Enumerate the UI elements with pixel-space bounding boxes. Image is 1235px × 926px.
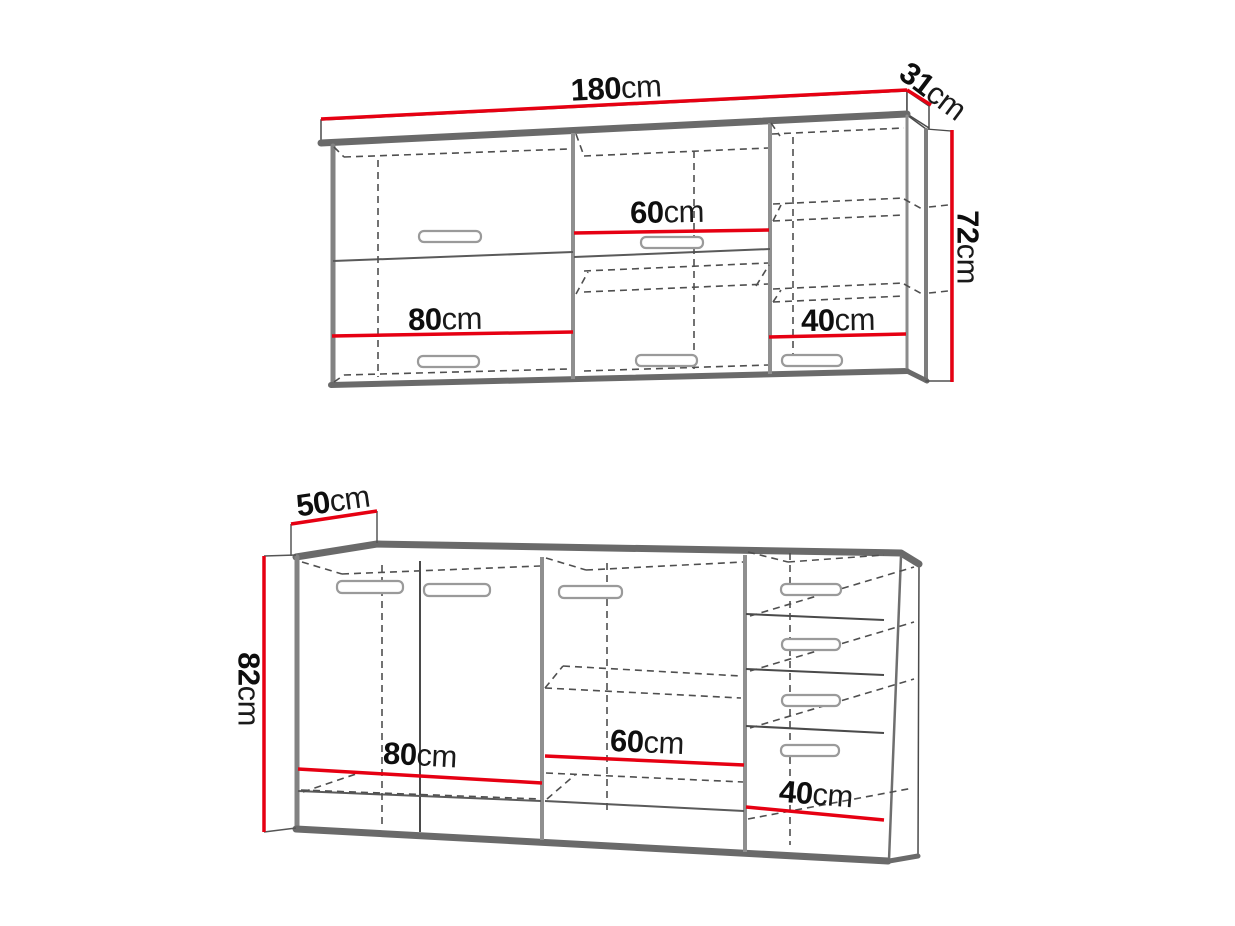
base-height-label: 82cm (234, 652, 265, 726)
line-art (0, 0, 1235, 926)
handle (337, 581, 403, 593)
handle (782, 695, 840, 706)
handle (636, 355, 697, 366)
wall-height-label: 72cm (953, 210, 984, 284)
wall-section-80-label: 80cm (408, 303, 482, 335)
handle (782, 355, 842, 366)
cabinet-dimension-diagram: 180cm 31cm 72cm 80cm 60cm 40cm 50cm 82cm… (0, 0, 1235, 926)
wall-width-label: 180cm (570, 70, 662, 105)
base-front-face (297, 555, 901, 861)
wall-side-strip (926, 129, 951, 381)
handle (419, 231, 481, 242)
handle (641, 237, 703, 248)
handle (782, 639, 840, 650)
base-section-40-label: 40cm (778, 776, 854, 813)
wall-side-gable (907, 115, 926, 381)
handle (559, 586, 622, 598)
handle (781, 584, 841, 595)
base-section-60-label: 60cm (609, 725, 684, 759)
handle (424, 584, 490, 596)
wall-section-40-label: 40cm (801, 304, 875, 336)
base-section-80-label: 80cm (382, 738, 457, 773)
wall-front-face (333, 116, 907, 384)
handle (781, 745, 839, 756)
handle (418, 356, 479, 367)
wall-section-60-label: 60cm (630, 196, 704, 228)
wall-cabinet-drawing (321, 90, 952, 385)
